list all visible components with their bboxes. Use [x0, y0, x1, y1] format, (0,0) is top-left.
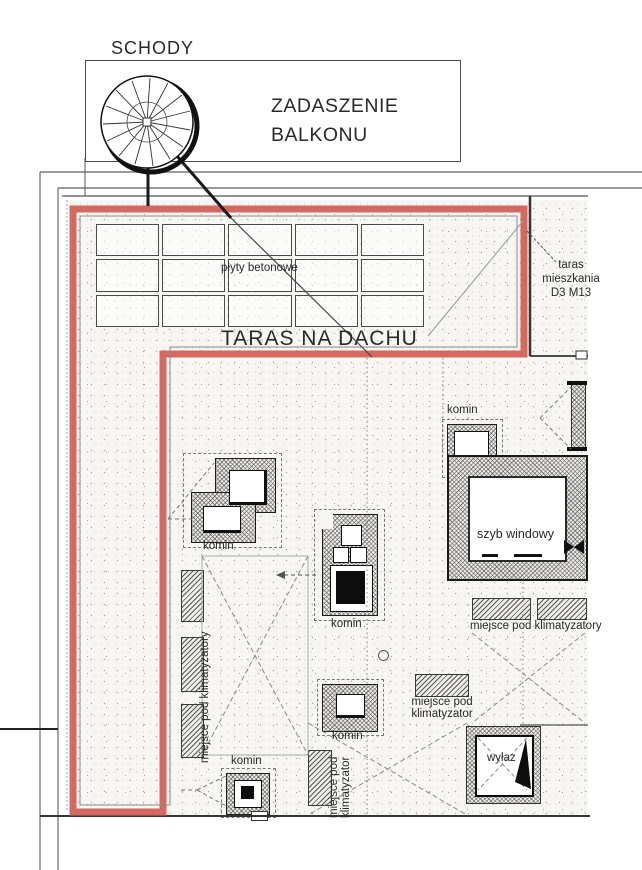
chimney-flue-opening [229, 470, 267, 505]
chimney-black-flue [241, 786, 254, 799]
stairs-label: SCHODY [111, 38, 194, 58]
wall-strip-cap [567, 381, 587, 385]
slab-tile [162, 259, 225, 291]
slab-tile [162, 224, 225, 256]
chimney-flue-cell [350, 547, 367, 563]
roof-hatch-interior [475, 735, 534, 797]
bottom-line-tick [251, 811, 268, 821]
chimney-label: komin [331, 618, 362, 631]
chimney-label: komin [447, 404, 478, 417]
chimney-flue-opening [203, 506, 241, 533]
ac-places-label-vertical: miejsce pod klimatyzatory [199, 567, 212, 763]
slab-tile [295, 224, 358, 256]
ac-place-label-vertical: miejsce pod klimatyzator [328, 738, 352, 818]
ac-place-label: miejsce pod klimatyzator [405, 696, 479, 720]
chimney-center-notch [320, 512, 333, 529]
elevator-shaft-interior [468, 476, 567, 562]
roof-plan-drawing: SCHODY ZADASZENIE BALKONU płyty betonowe… [0, 0, 642, 870]
chimney-flue-opening [336, 694, 365, 718]
neighbour-terrace-label: taras mieszkania D3 M13 [534, 258, 608, 300]
chimney-black-flue [336, 571, 365, 604]
ac-place-rect [537, 598, 587, 620]
slab-tile [96, 224, 159, 256]
slab-tile [228, 295, 291, 327]
chimney-label: komin [231, 755, 262, 768]
slab-tile [361, 295, 424, 327]
chimney-label: komin [203, 540, 234, 553]
chimney-flue-cell [341, 525, 362, 546]
roof-hatch-label: wyłaz [487, 752, 516, 765]
slab-tile [228, 224, 291, 256]
shaft-door-mark [514, 554, 542, 557]
slab-tile [295, 295, 358, 327]
ac-place-rect [415, 674, 469, 697]
slab-tile [361, 259, 424, 291]
concrete-slabs-label: płyty betonowe [221, 262, 298, 275]
slab-tile [361, 224, 424, 256]
ac-places-label: miejsce pod klimatyzatory [470, 620, 602, 633]
roof-terrace-label: TARAS NA DACHU [221, 327, 418, 350]
chimney-flue-cell [333, 547, 349, 563]
shaft-door-mark [482, 554, 498, 557]
elevator-shaft-label: szyb windowy [468, 528, 563, 541]
wall-strip [571, 384, 586, 450]
vent-circle [378, 650, 389, 661]
ac-place-rect [472, 598, 531, 620]
slab-tile [96, 295, 159, 327]
balcony-roof-label: ZADASZENIE BALKONU [271, 92, 398, 150]
slab-tile [295, 259, 358, 291]
concrete-slab-grid [96, 224, 424, 327]
slab-tile [96, 259, 159, 291]
wall-strip-cap [567, 447, 587, 451]
slab-tile [162, 295, 225, 327]
